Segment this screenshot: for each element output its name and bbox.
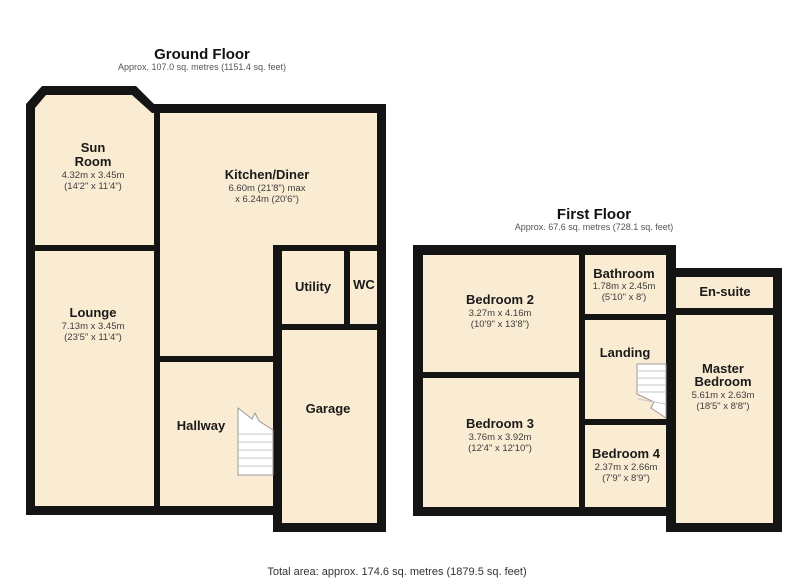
label-utility: Utility: [295, 279, 332, 294]
room-dims-metric: 4.32m x 3.45m: [62, 170, 125, 181]
room-dims-imperial: (7'9" x 8'9"): [602, 473, 650, 484]
wall-sunroom-lounge: [35, 245, 154, 251]
wall-kitchen-hallway: [154, 356, 282, 362]
wall-kitchen-garage-vertical: [273, 245, 282, 532]
wall-utility-wc: [344, 245, 350, 330]
room-name: Kitchen/Diner: [225, 167, 310, 182]
label-lounge: Lounge 7.13m x 3.45m (23'5" x 11'4"): [62, 305, 125, 343]
first-floor-plan: First Floor Approx. 67.6 sq. metres (728…: [413, 206, 782, 532]
ground-floor-subtitle: Approx. 107.0 sq. metres (1151.4 sq. fee…: [118, 62, 286, 72]
label-kitchen-diner: Kitchen/Diner 6.60m (21'8") max x 6.24m …: [225, 167, 310, 205]
label-wc: WC: [353, 277, 375, 292]
label-bathroom: Bathroom 1.78m x 2.45m (5'10" x 8'): [593, 266, 656, 303]
room-name: Lounge: [70, 305, 117, 320]
wall-sunroom-kitchen-hallway: [154, 104, 160, 506]
room-dims-imperial: x 6.24m (20'6"): [235, 194, 299, 205]
wall-utility-garage: [273, 324, 377, 330]
room-dims-imperial: (10'9" x 13'8"): [471, 319, 529, 330]
room-dims-imperial: (23'5" x 11'4"): [64, 332, 122, 343]
label-bedroom2: Bedroom 2 3.27m x 4.16m (10'9" x 13'8"): [466, 292, 534, 330]
floorplan-canvas: Ground Floor Approx. 107.0 sq. metres (1…: [0, 0, 800, 582]
label-ensuite: En-suite: [699, 284, 750, 299]
room-dims-metric: 7.13m x 3.45m: [62, 321, 125, 332]
room-name: Bedroom 3: [466, 416, 534, 431]
label-landing: Landing: [600, 345, 651, 360]
label-hallway: Hallway: [177, 418, 226, 433]
room-name: Bedroom: [694, 374, 751, 389]
room-name: Sun: [81, 140, 106, 155]
first-floor-title: First Floor: [557, 206, 631, 223]
wall-bedroom2-landing-column: [579, 255, 585, 507]
wall-master-left: [666, 245, 676, 532]
wall-bathroom-landing: [579, 314, 666, 320]
room-dims-metric: 5.61m x 2.63m: [692, 390, 755, 401]
room-name: Room: [75, 154, 112, 169]
room-dims-metric: 1.78m x 2.45m: [593, 281, 656, 292]
wall-landing-bedroom4: [579, 419, 666, 425]
total-area-label: Total area: approx. 174.6 sq. metres (18…: [267, 566, 526, 578]
floorplan-page: Ground Floor Approx. 107.0 sq. metres (1…: [0, 0, 800, 582]
label-garage: Garage: [306, 401, 351, 416]
ground-floor-plan: Ground Floor Approx. 107.0 sq. metres (1…: [26, 46, 386, 532]
room-name: Bedroom 4: [592, 446, 661, 461]
first-floor-subtitle: Approx. 67.6 sq. metres (728.1 sq. feet): [515, 222, 674, 232]
room-dims-metric: 3.27m x 4.16m: [469, 308, 532, 319]
room-dims-imperial: (18'5" x 8'8"): [696, 401, 749, 412]
room-name: Bedroom 2: [466, 292, 534, 307]
room-dims-imperial: (5'10" x 8'): [602, 292, 647, 303]
room-dims-metric: 3.76m x 3.92m: [469, 432, 532, 443]
room-dims-metric: 2.37m x 2.66m: [595, 462, 658, 473]
ground-floor-title: Ground Floor: [154, 46, 250, 63]
room-dims-metric: 6.60m (21'8") max: [229, 183, 306, 194]
label-bedroom3: Bedroom 3 3.76m x 3.92m (12'4" x 12'10"): [466, 416, 534, 454]
room-dims-imperial: (12'4" x 12'10"): [468, 443, 532, 454]
room-name: Bathroom: [593, 266, 654, 281]
wall-bedroom2-bedroom3: [423, 372, 585, 378]
wall-kitchen-utility: [273, 245, 377, 251]
room-dims-imperial: (14'2" x 11'4"): [64, 181, 122, 192]
wall-ensuite-master: [676, 308, 773, 315]
